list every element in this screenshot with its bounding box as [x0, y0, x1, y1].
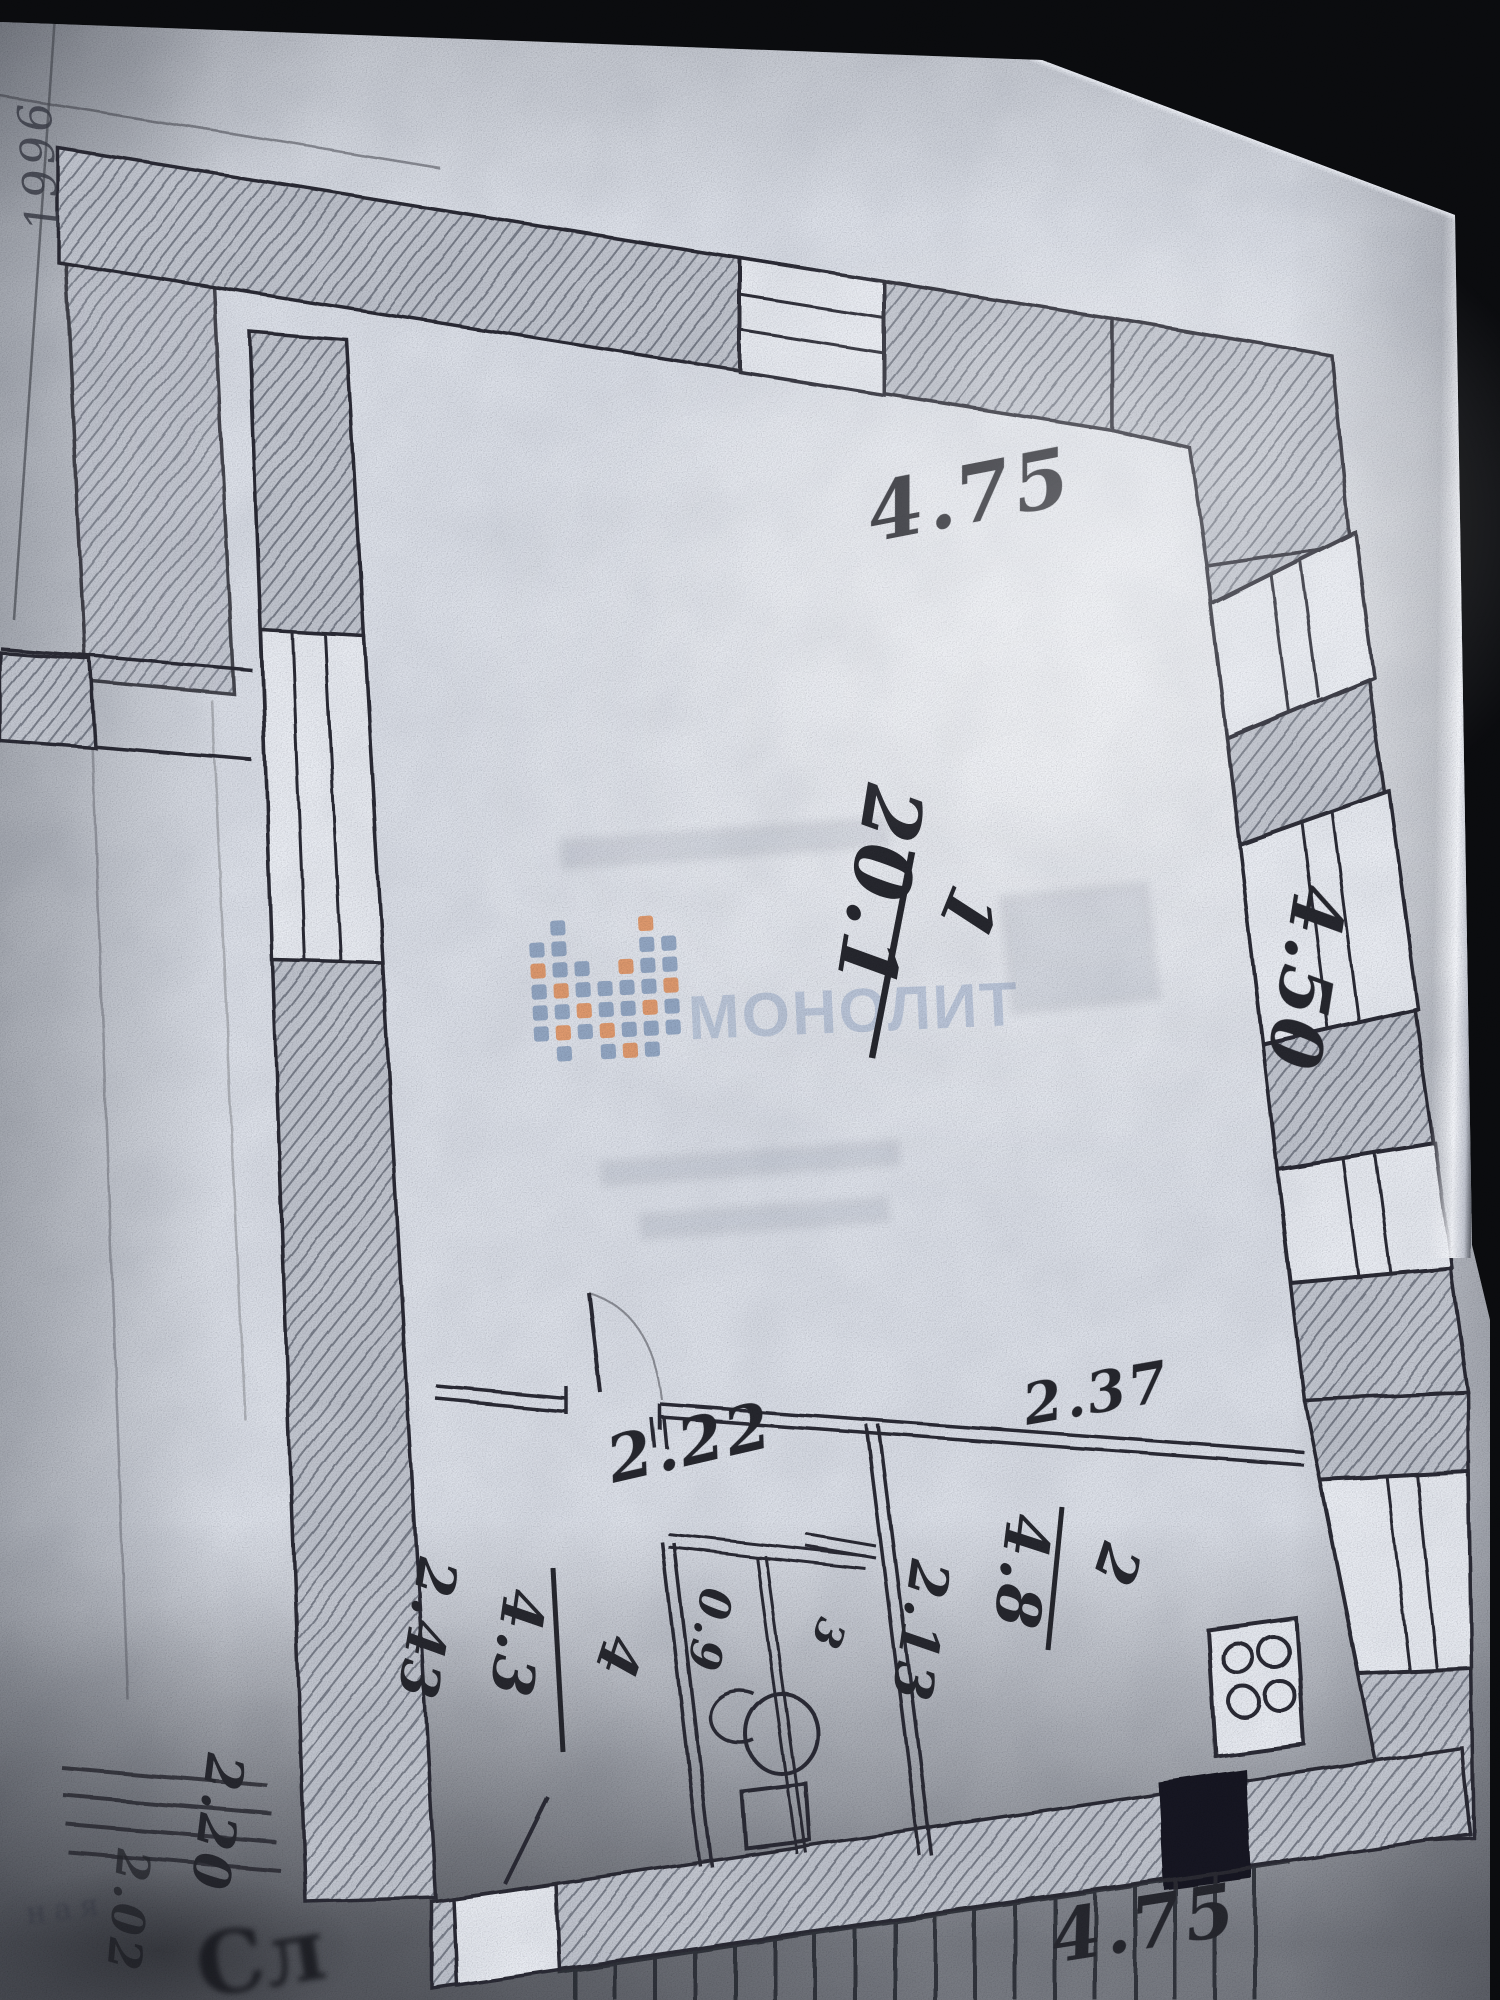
room1-area: 20.1: [817, 778, 942, 998]
floor-plan-drawing: 4.75 4.50 20.1 1 2.22 2.37 2.43 4.3 4 0.…: [0, 0, 1500, 2000]
entry-door-leaf: [505, 1797, 548, 1884]
wall-bottom: [432, 1748, 1470, 1988]
room1-number: 1: [920, 875, 1016, 954]
margin-year: 1996: [7, 97, 70, 234]
dim-kitchen-depth: 2.13: [879, 1555, 962, 1707]
document-paper: МОНОЛИТ: [0, 0, 1500, 2000]
stamp-text: ная: [24, 1887, 108, 1932]
page-frame-line: [14, 0, 56, 620]
hall-area: 4.3: [476, 1585, 559, 1703]
entry-door-gap: [453, 1884, 560, 1985]
stove-icon: [1208, 1618, 1304, 1756]
floor-plan-photo: МОНОЛИТ: [0, 0, 1500, 2000]
window-kitchen: [1320, 1472, 1472, 1674]
toilet-icon: [742, 1694, 818, 1848]
window-right-3: [1277, 1143, 1452, 1283]
dim-top: 4.75: [859, 429, 1080, 561]
dim-kitchen-width: 2.37: [1017, 1348, 1176, 1439]
hall-number: 4: [580, 1628, 656, 1688]
vent-shaft: [261, 630, 383, 963]
wc-number: 3: [800, 1612, 855, 1657]
window-top: [740, 258, 884, 395]
dim-hall-width: 2.22: [599, 1388, 780, 1499]
wc-area: 0.9: [676, 1584, 741, 1677]
wall-right: [1112, 318, 1474, 1842]
stamp-mark: Сл: [189, 1899, 332, 2000]
kitchen-number: 2: [1078, 1535, 1154, 1596]
stamp: ная Сл: [0, 1856, 400, 2000]
partition-main: [436, 1292, 1304, 1465]
room-door-leaf: [588, 1292, 600, 1392]
